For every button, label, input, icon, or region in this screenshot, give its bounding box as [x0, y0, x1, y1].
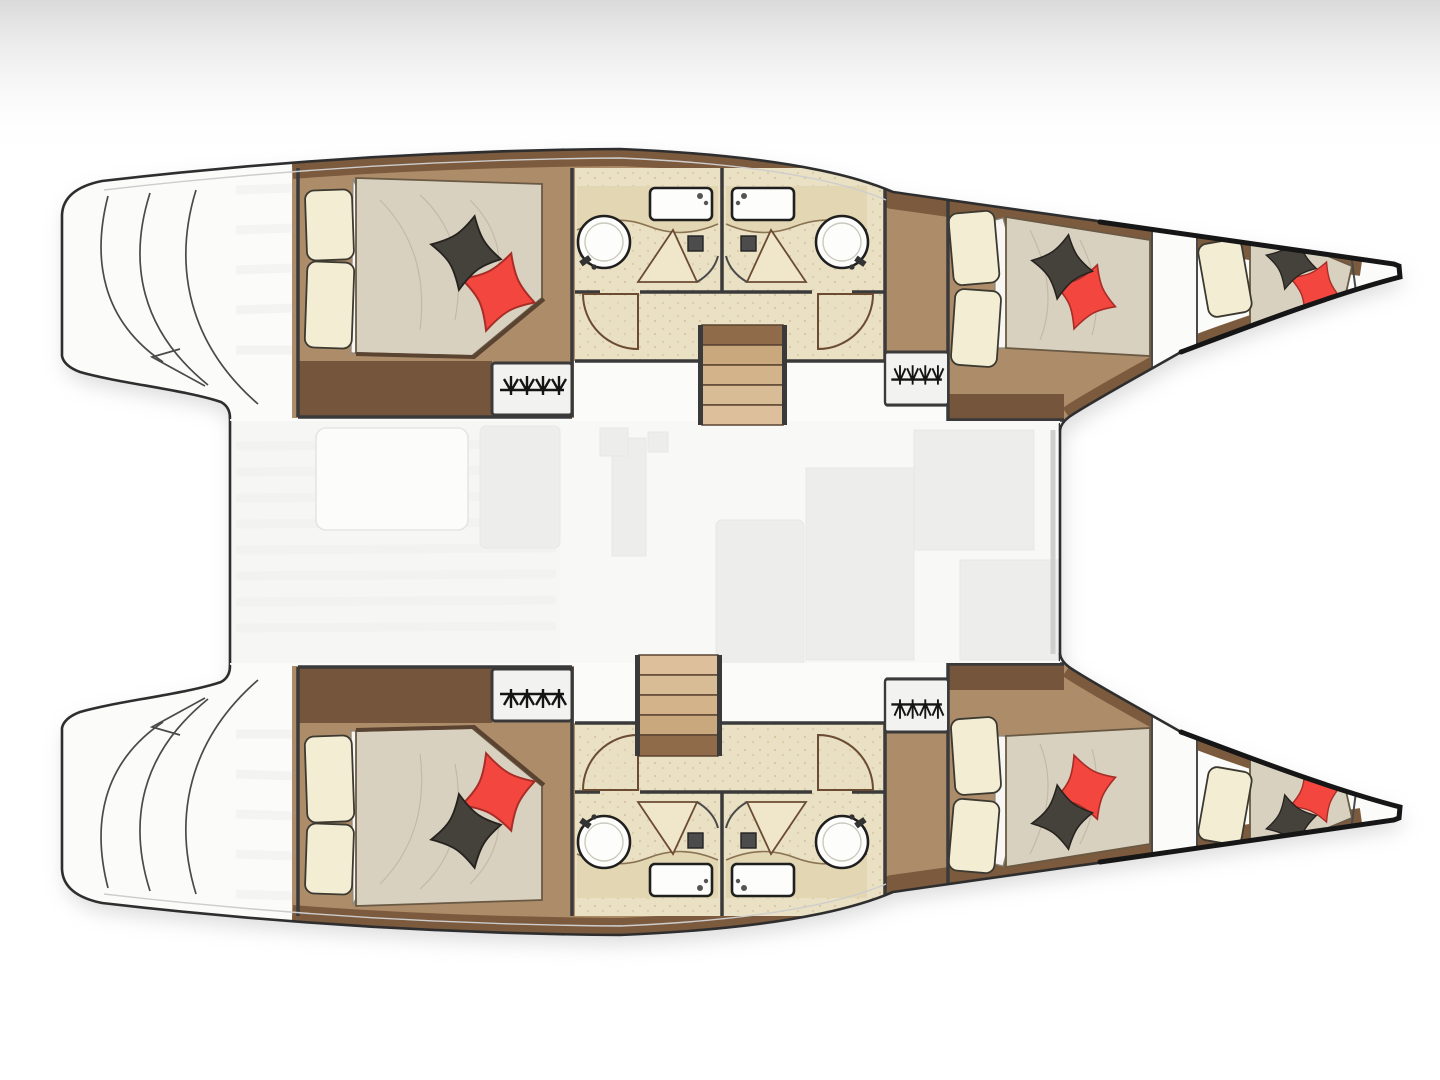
galley-counter — [806, 468, 914, 660]
cockpit-table — [316, 428, 468, 530]
bridgedeck — [230, 414, 1060, 672]
stairs-starboard — [635, 655, 722, 756]
top-shadow-band — [0, 0, 1440, 160]
catamaran-floor-plan-page — [0, 0, 1440, 1080]
stairs-port — [698, 325, 787, 425]
nav-station — [960, 560, 1060, 660]
cockpit-bench — [480, 426, 560, 548]
catamaran-floor-plan — [0, 0, 1440, 1080]
galley-block — [914, 430, 1034, 550]
saloon-table — [716, 520, 804, 672]
